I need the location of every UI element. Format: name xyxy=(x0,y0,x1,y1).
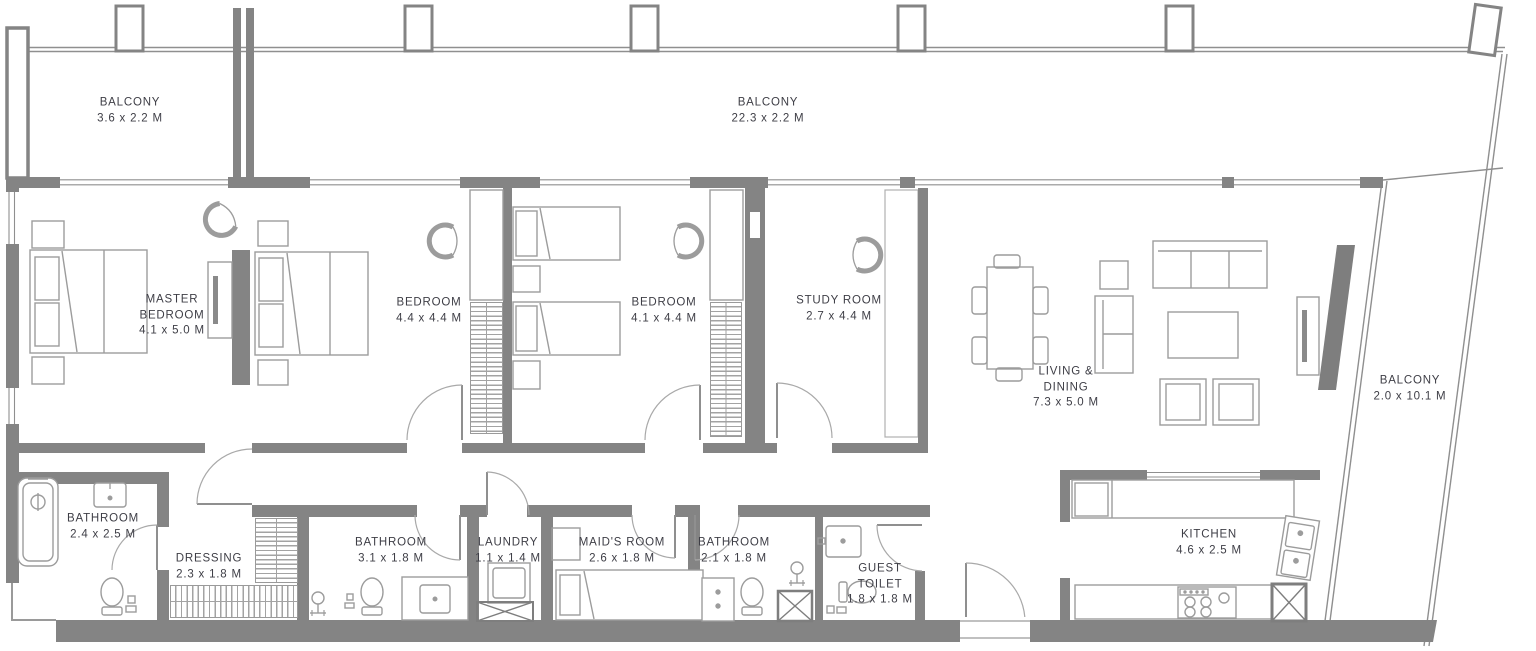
room-label-bedroom-2: BEDROOM4.1 x 4.4 M xyxy=(631,295,697,326)
armchair xyxy=(853,239,881,271)
door-laundry xyxy=(487,472,529,515)
washing-machine xyxy=(488,563,530,603)
duct-shaft xyxy=(477,602,533,621)
accessory xyxy=(347,594,353,600)
room-label-balcony-right: BALCONY2.0 x 10.1 M xyxy=(1365,373,1455,404)
door-entrance xyxy=(966,563,1025,622)
room-label-guest-toilet: GUEST TOILET1.8 x 1.8 M xyxy=(840,562,920,609)
laundry-fixtures xyxy=(477,563,533,621)
nightstand xyxy=(513,361,540,389)
facade-columns xyxy=(7,4,1501,178)
single-bed xyxy=(513,207,620,260)
bathroom-2-fixtures xyxy=(310,577,468,620)
floor-plan: BALCONY3.6 x 2.2 M BALCONY22.3 x 2.2 M M… xyxy=(0,0,1536,651)
wardrobe-bedroom-1 xyxy=(470,302,503,434)
coffee-table xyxy=(1168,312,1238,358)
room-label-bathroom-2: BATHROOM3.1 x 1.8 M xyxy=(355,535,427,566)
duct-shaft xyxy=(1272,584,1306,621)
dining-set xyxy=(972,255,1048,381)
double-bed xyxy=(255,252,368,355)
wall-slit xyxy=(750,212,760,238)
duct-shaft xyxy=(778,591,812,621)
feature-wall xyxy=(1318,245,1355,390)
dining-table xyxy=(987,267,1033,369)
dining-chair xyxy=(1033,287,1048,314)
fridge-counter xyxy=(1072,480,1294,518)
accessory xyxy=(126,606,136,612)
armchair xyxy=(199,200,240,242)
bathtub xyxy=(18,478,58,566)
living-room-furniture xyxy=(1095,241,1319,425)
toilet xyxy=(101,578,123,615)
entrance-threshold xyxy=(960,617,1030,643)
armchair xyxy=(674,225,702,257)
nightstand xyxy=(258,221,288,246)
side-table xyxy=(1100,261,1128,289)
table xyxy=(552,528,580,560)
cabinet xyxy=(470,190,503,300)
vanity xyxy=(702,578,734,621)
room-label-dressing: DRESSING2.3 x 1.8 M xyxy=(176,551,242,582)
balcony-divider-wall xyxy=(233,8,254,180)
nightstand xyxy=(32,221,64,248)
sink xyxy=(94,483,126,507)
dining-chair xyxy=(972,287,987,314)
nightstand xyxy=(32,357,64,384)
room-label-balcony-top-left: BALCONY3.6 x 2.2 M xyxy=(97,95,163,126)
single-bed xyxy=(556,570,703,620)
wardrobe-dressing-bottom xyxy=(170,585,298,618)
wardrobe-dressing-right xyxy=(255,518,298,583)
room-label-bedroom-1: BEDROOM4.4 x 4.4 M xyxy=(396,295,462,326)
wardrobe-bedroom-2 xyxy=(710,302,742,437)
dining-chair xyxy=(972,337,987,364)
double-sink xyxy=(1277,516,1320,581)
toilet xyxy=(741,578,763,615)
study-room-furniture xyxy=(853,239,881,271)
room-label-study-room: STUDY ROOM2.7 x 4.4 M xyxy=(796,293,882,324)
corner-step-lines xyxy=(12,583,56,620)
sofa-2-seat xyxy=(1095,296,1133,373)
tv-console xyxy=(1297,297,1319,375)
stove xyxy=(1178,587,1236,618)
room-label-living-dining: LIVING & DINING7.3 x 5.0 M xyxy=(1024,365,1108,412)
shower-head xyxy=(310,592,326,616)
door-study xyxy=(777,383,832,438)
accessory xyxy=(128,596,135,603)
cabinet xyxy=(710,190,743,300)
nightstand xyxy=(258,360,288,385)
sink xyxy=(818,526,861,557)
shower-head xyxy=(789,562,805,586)
dining-chair xyxy=(996,368,1022,381)
dining-chair xyxy=(994,255,1020,268)
room-label-kitchen: KITCHEN4.6 x 2.5 M xyxy=(1176,527,1242,558)
door-dressing xyxy=(197,449,252,504)
study-living-wall xyxy=(918,188,928,443)
sofa-3-seat xyxy=(1153,241,1267,288)
toilet xyxy=(361,578,383,615)
armchair xyxy=(429,225,457,257)
door-bedroom-2 xyxy=(645,385,700,440)
room-label-master-bedroom: MASTER BEDROOM4.1 x 5.0 M xyxy=(125,293,220,340)
dining-chair xyxy=(1033,337,1048,364)
room-label-balcony-top-center: BALCONY22.3 x 2.2 M xyxy=(732,95,805,126)
armchair-square xyxy=(1160,379,1206,425)
vanity xyxy=(402,577,468,620)
bathroom-3-fixtures xyxy=(702,562,812,621)
room-label-bathroom-master: BATHROOM2.4 x 2.5 M xyxy=(67,511,139,542)
single-bed xyxy=(513,302,620,355)
room-label-laundry: LAUNDRY1.1 x 1.4 M xyxy=(475,535,541,566)
accessory xyxy=(827,606,834,613)
armchair-square xyxy=(1213,379,1259,425)
study-partition xyxy=(885,190,918,437)
bedroom-1-furniture xyxy=(255,190,503,385)
nightstand xyxy=(513,266,540,292)
room-label-maids-room: MAID'S ROOM2.6 x 1.8 M xyxy=(579,535,665,566)
bedroom-2-furniture xyxy=(513,190,743,389)
accessory xyxy=(345,603,354,608)
door-bedroom-1 xyxy=(407,385,462,440)
counter-bottom xyxy=(1075,585,1272,619)
room-label-bathroom-3: BATHROOM2.1 x 1.8 M xyxy=(698,535,770,566)
